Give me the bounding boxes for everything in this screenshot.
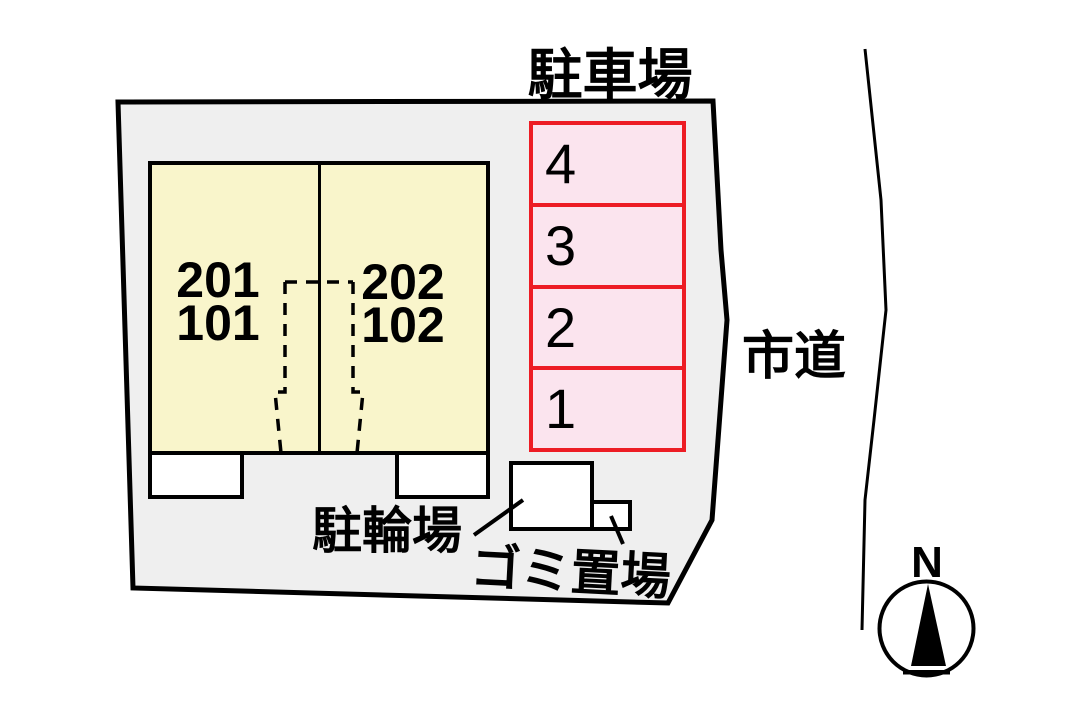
road-line xyxy=(862,49,886,630)
site-plan-page: 市道 駐車場 4 3 2 1 201 101 202 102 駐輪場 ゴミ置場 … xyxy=(0,0,1080,720)
parking-title: 駐車場 xyxy=(527,44,692,106)
garbage-area-rect xyxy=(592,502,630,529)
parking-area: 4 3 2 1 xyxy=(531,123,684,450)
parking-space-number-1: 1 xyxy=(545,377,576,440)
compass-needle-icon xyxy=(911,584,946,666)
site-plan-drawing: 市道 駐車場 4 3 2 1 201 101 202 102 駐輪場 ゴミ置場 … xyxy=(0,0,1080,720)
porch-right xyxy=(397,453,488,497)
porch-left xyxy=(150,453,242,497)
bicycle-parking-rect xyxy=(511,463,592,529)
parking-space-number-4: 4 xyxy=(545,132,576,195)
compass-needle-base xyxy=(903,670,950,675)
parking-space-number-2: 2 xyxy=(545,296,576,359)
parking-space-number-3: 3 xyxy=(545,214,576,277)
unit-number-102: 102 xyxy=(361,297,444,353)
garbage-area-label: ゴミ置場 xyxy=(469,539,672,605)
road-label: 市道 xyxy=(742,328,846,386)
bicycle-parking-label: 駐輪場 xyxy=(312,503,462,559)
unit-number-101: 101 xyxy=(176,295,259,351)
compass: N xyxy=(880,538,974,676)
building: 201 101 202 102 xyxy=(150,163,488,497)
